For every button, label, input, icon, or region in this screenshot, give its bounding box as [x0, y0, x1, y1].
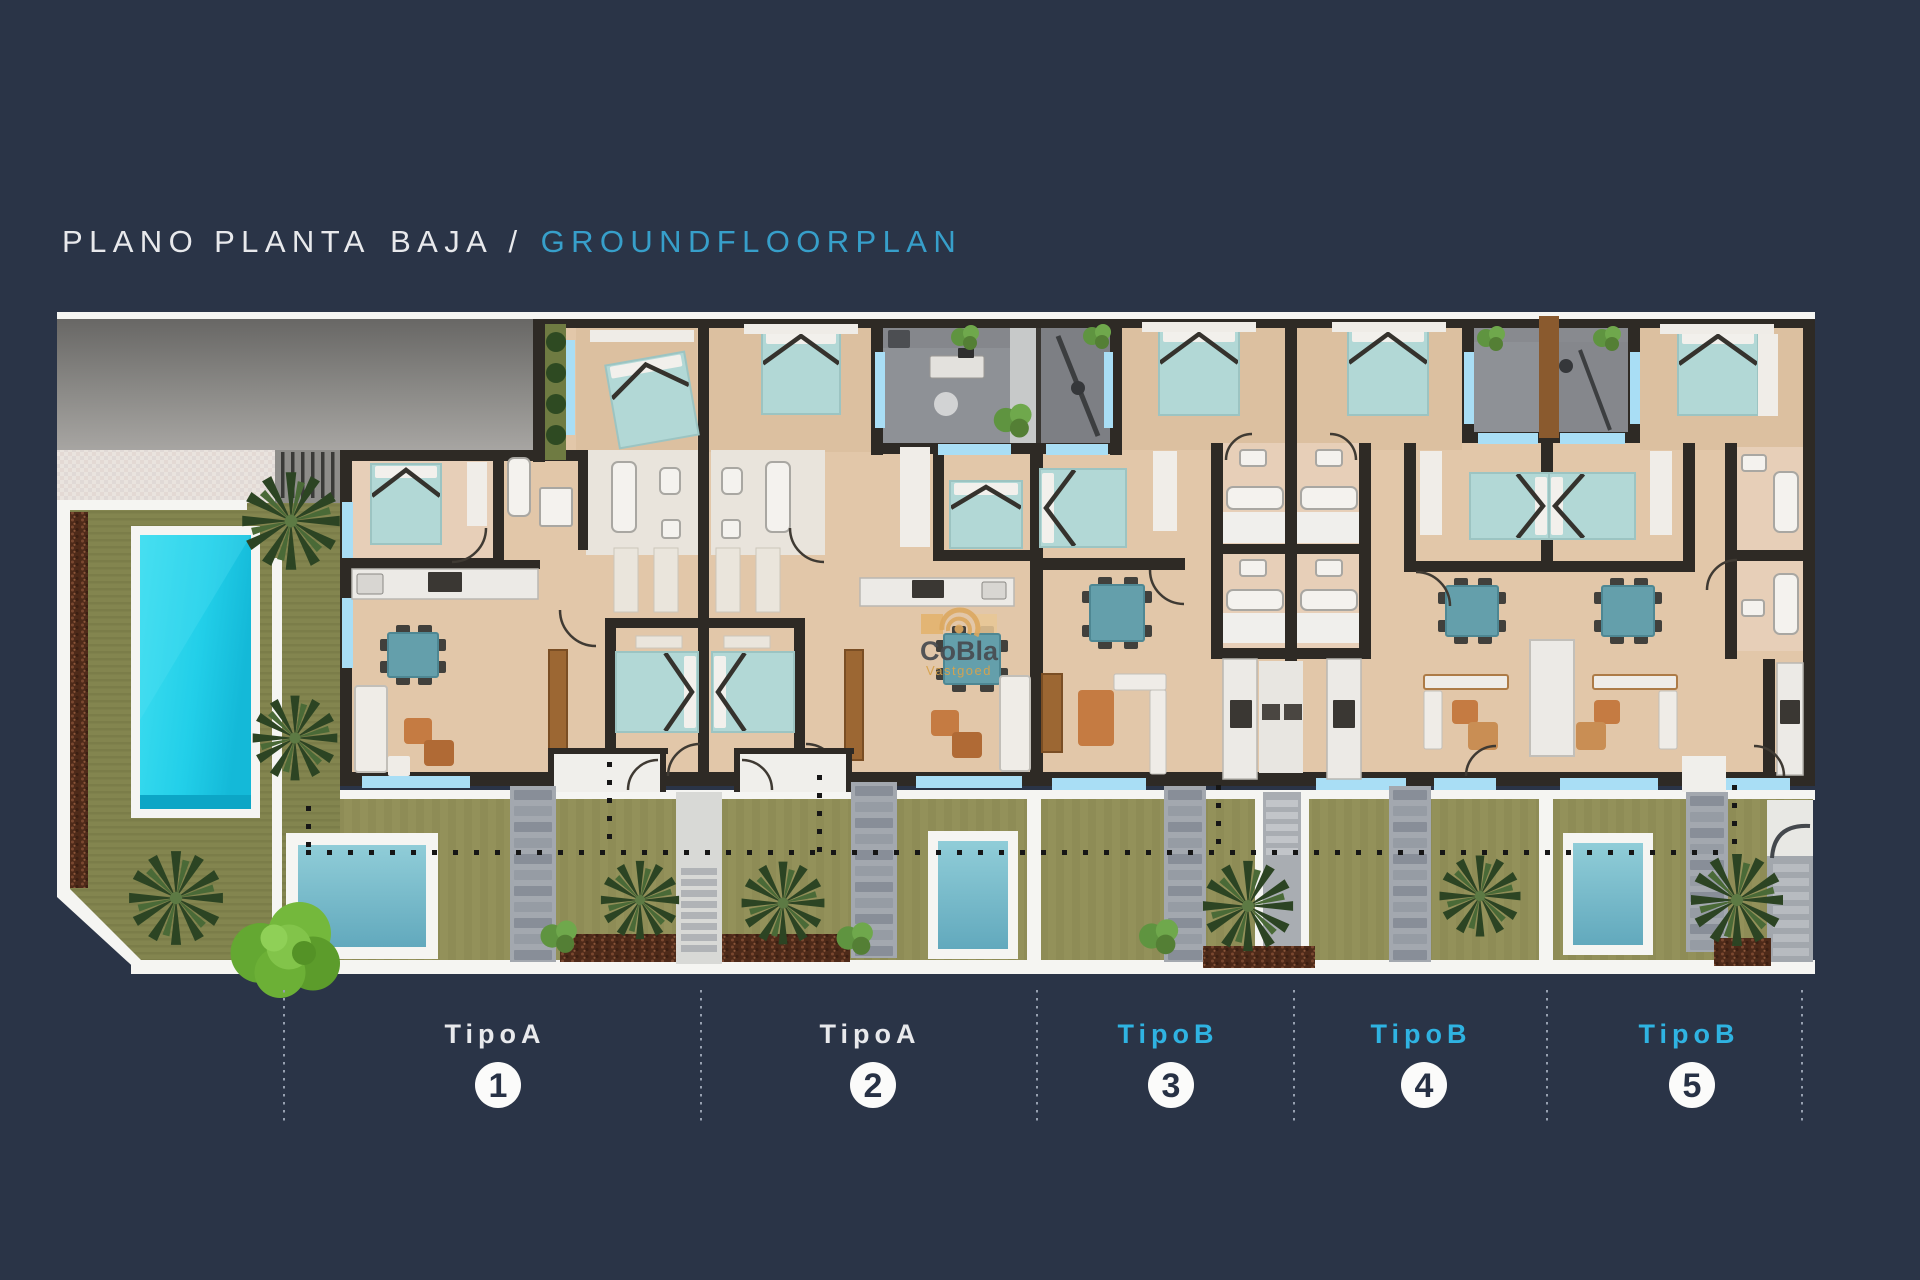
svg-text:Vastgoed: Vastgoed: [926, 663, 992, 678]
svg-text:TipoB: TipoB: [1371, 1019, 1472, 1049]
svg-text:4: 4: [1415, 1067, 1434, 1105]
svg-text:1: 1: [489, 1067, 508, 1105]
svg-text:TipoB: TipoB: [1639, 1019, 1740, 1049]
svg-text:3: 3: [1162, 1067, 1181, 1105]
svg-text:PLANO PLANTA BAJA / GROUNDFLOO: PLANO PLANTA BAJA / GROUNDFLOORPLAN: [62, 224, 962, 259]
svg-text:5: 5: [1683, 1067, 1702, 1105]
svg-text:TipoA: TipoA: [820, 1019, 921, 1049]
svg-text:TipoA: TipoA: [445, 1019, 546, 1049]
svg-text:CoBla: CoBla: [920, 636, 999, 666]
svg-text:TipoB: TipoB: [1118, 1019, 1219, 1049]
svg-text:2: 2: [864, 1067, 883, 1105]
